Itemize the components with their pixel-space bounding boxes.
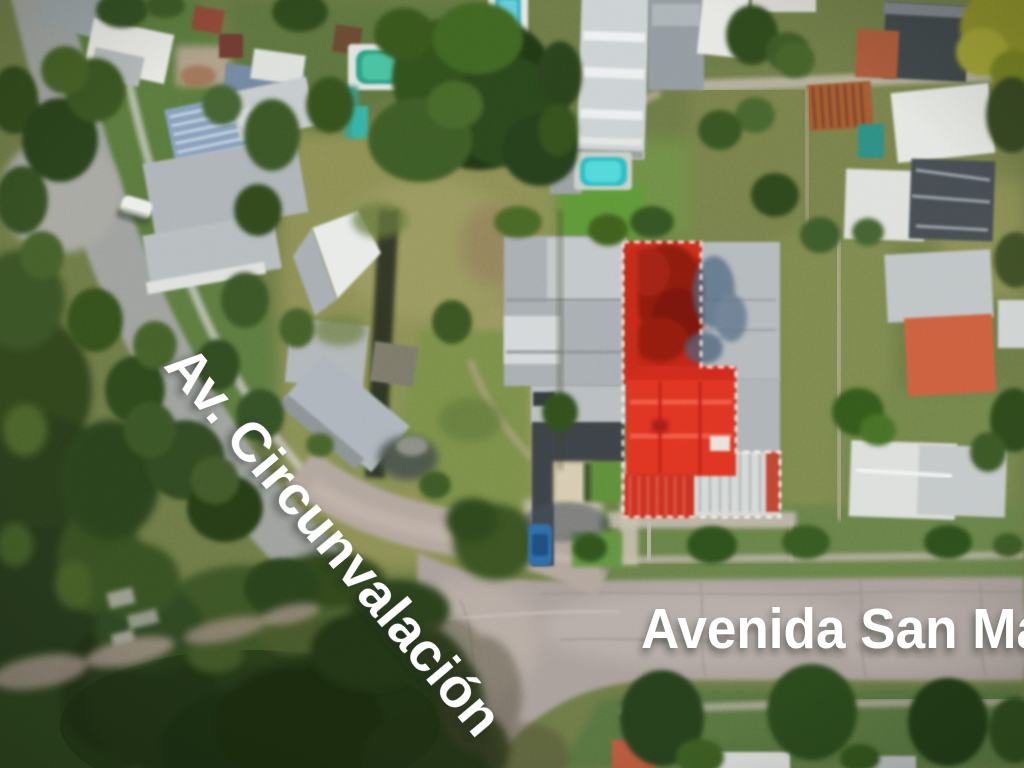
svg-text:Avenida San Ma: Avenida San Ma: [641, 597, 1024, 661]
